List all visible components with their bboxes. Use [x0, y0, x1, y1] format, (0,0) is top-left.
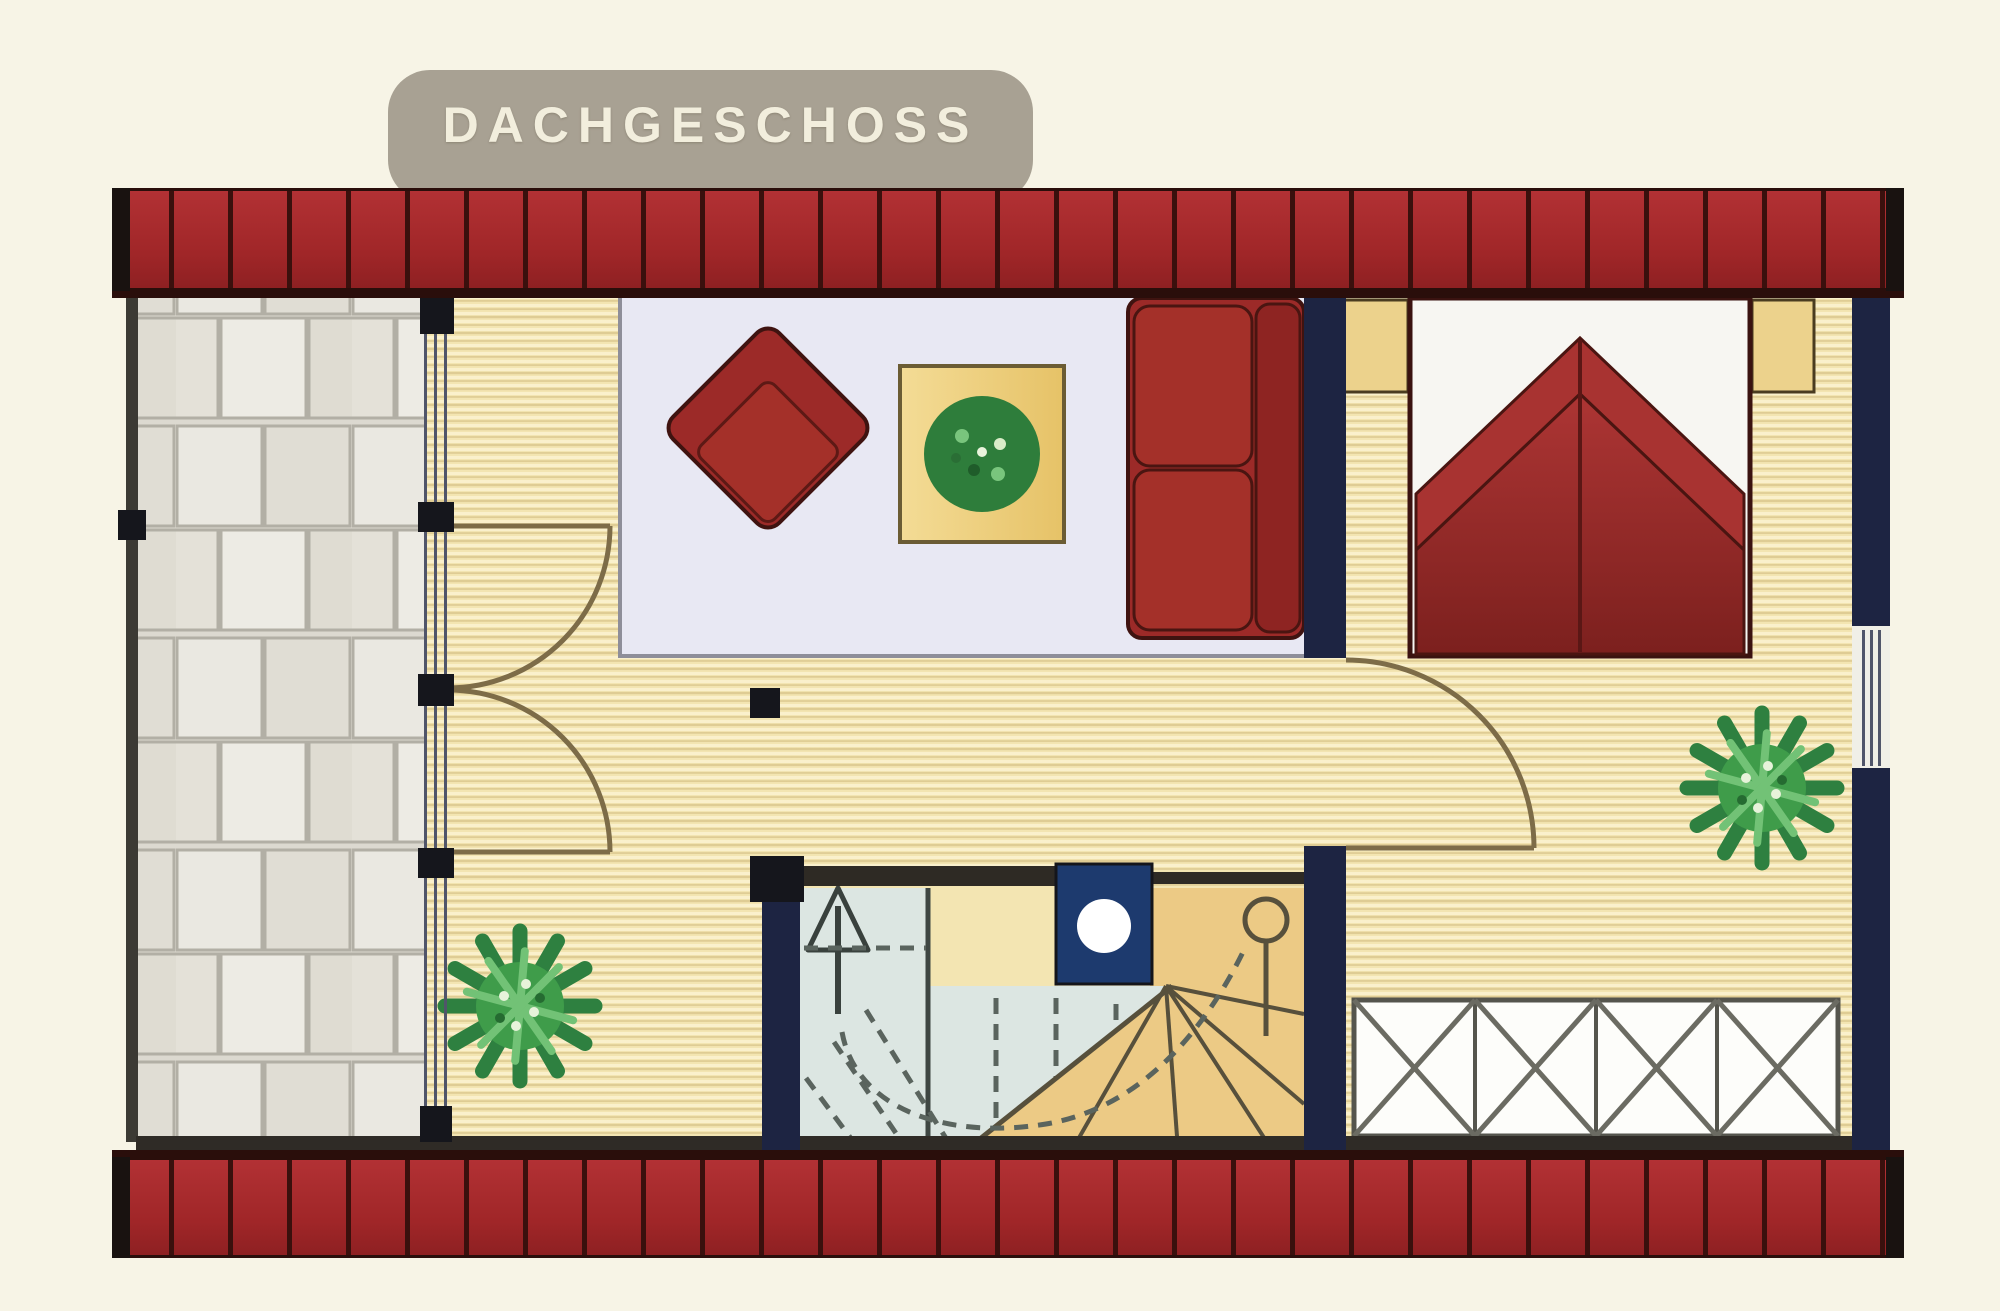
coffee-table-with-plant — [900, 366, 1064, 542]
stairwell-left-wall — [762, 862, 800, 1150]
roof-edge-bottom — [112, 1150, 1904, 1258]
sofa — [1128, 298, 1304, 638]
partition-wall — [1304, 296, 1346, 1150]
terrace-tiles — [136, 296, 424, 1138]
floorplan: DACHGESCHOSS — [0, 0, 2000, 1311]
chimney-block — [1056, 864, 1152, 984]
bedroom-window — [1862, 630, 1881, 766]
nightstand-left — [1342, 300, 1408, 392]
double-bed — [1342, 298, 1814, 656]
nightstand-right — [1752, 300, 1814, 392]
wardrobe-radiator — [1354, 1000, 1838, 1136]
terrace-glass-wall — [424, 296, 447, 1146]
winder-staircase — [800, 864, 1304, 1152]
potted-plant-living — [445, 931, 595, 1081]
potted-plant-bedroom — [1687, 713, 1837, 863]
terrace-double-door — [448, 526, 610, 852]
bedroom-door — [1346, 660, 1534, 848]
left-outer-wall — [126, 296, 138, 1142]
right-outer-wall — [1852, 296, 1890, 1150]
newel-post-icon — [1245, 899, 1287, 941]
floor-bottom-wall — [136, 1136, 1854, 1150]
roof-edge-top — [112, 188, 1904, 298]
